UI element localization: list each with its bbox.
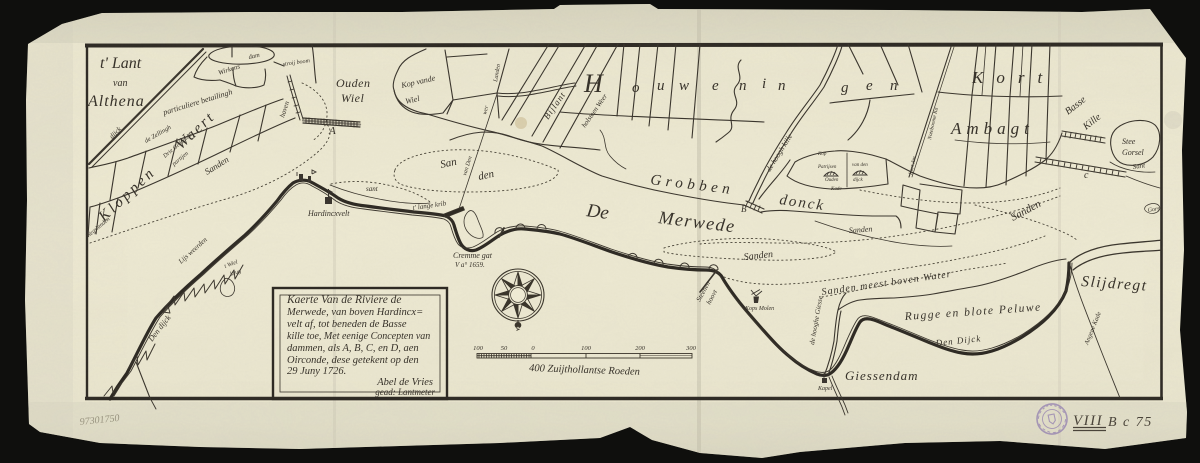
svg-text:De: De: [584, 200, 610, 224]
svg-text:Kops Molen: Kops Molen: [744, 306, 774, 312]
svg-text:200: 200: [635, 345, 646, 352]
svg-text:Cremme gat: Cremme gat: [453, 251, 493, 260]
svg-text:Merwede, van boven Hardincx=: Merwede, van boven Hardincx=: [286, 307, 423, 318]
svg-text:Patrijsen: Patrijsen: [817, 165, 837, 170]
svg-text:i: i: [762, 76, 766, 92]
svg-text:Ambagt: Ambagt: [950, 119, 1034, 138]
svg-text:van den: van den: [852, 163, 868, 168]
svg-text:n: n: [778, 78, 786, 94]
svg-text:100: 100: [473, 345, 484, 352]
svg-text:Oirconde, dese getekent op den: Oirconde, dese getekent op den: [287, 355, 419, 366]
svg-text:Kort: Kort: [971, 68, 1055, 87]
svg-text:Kapel: Kapel: [817, 386, 833, 392]
svg-text:van: van: [113, 78, 127, 89]
svg-text:Kade: Kade: [830, 187, 842, 192]
svg-text:sant: sant: [366, 185, 379, 193]
svg-text:VIII: VIII: [1073, 413, 1103, 429]
svg-text:o: o: [632, 80, 640, 96]
svg-text:w: w: [679, 78, 689, 94]
svg-text:Hardincxvelt: Hardincxvelt: [307, 209, 350, 218]
svg-text:V a° 1659.: V a° 1659.: [455, 261, 485, 269]
svg-text:u: u: [657, 78, 665, 94]
svg-text:n: n: [890, 78, 898, 94]
svg-text:Giessendam: Giessendam: [845, 368, 919, 383]
svg-text:Gorsel: Gorsel: [1122, 148, 1145, 157]
svg-text:H: H: [583, 69, 604, 98]
svg-text:gead: Lantmeter: gead: Lantmeter: [375, 387, 435, 397]
svg-text:velt af, tot beneden de Basse: velt af, tot beneden de Basse: [287, 319, 407, 330]
svg-text:dammen, als A, B, C, en D, aen: dammen, als A, B, C, en D, aen: [287, 343, 419, 354]
svg-text:29 Juny 1726.: 29 Juny 1726.: [287, 366, 346, 377]
svg-text:50: 50: [501, 345, 508, 352]
svg-text:Sanden: Sanden: [849, 224, 873, 235]
svg-text:Wiel: Wiel: [341, 91, 364, 105]
svg-text:Kaerte Van de Riviere de: Kaerte Van de Riviere de: [286, 294, 402, 306]
svg-text:B: B: [741, 204, 747, 214]
svg-text:Ouden: Ouden: [825, 178, 839, 183]
svg-text:100: 100: [581, 345, 592, 352]
svg-text:c: c: [1084, 170, 1089, 181]
svg-text:e: e: [866, 78, 873, 94]
svg-text:e: e: [712, 78, 719, 94]
svg-text:n: n: [739, 78, 747, 94]
svg-text:Kop: Kop: [817, 152, 827, 157]
svg-text:Ouden: Ouden: [336, 76, 371, 90]
svg-text:Stee: Stee: [1122, 137, 1136, 146]
svg-text:300: 300: [685, 345, 697, 352]
svg-text:Althena: Althena: [87, 93, 145, 110]
svg-text:B c 75: B c 75: [1108, 415, 1153, 430]
svg-text:g: g: [841, 80, 849, 96]
svg-text:A: A: [328, 125, 336, 137]
svg-text:kille toe, Met eenige Concepte: kille toe, Met eenige Concepten van: [287, 331, 430, 342]
svg-text:dijck: dijck: [853, 178, 863, 183]
svg-text:t' Lant: t' Lant: [100, 55, 142, 72]
